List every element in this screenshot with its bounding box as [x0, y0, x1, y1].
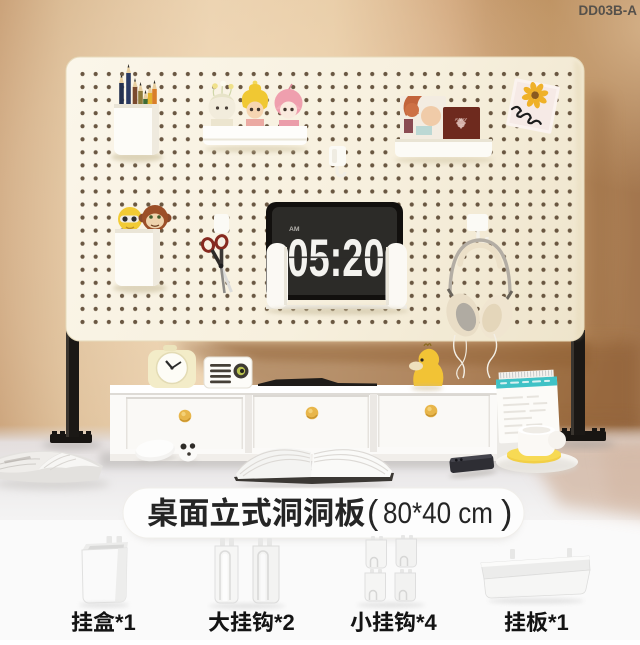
svg-text:*2: *2 [274, 610, 295, 635]
svg-text:): ) [501, 494, 512, 532]
svg-text:(: ( [367, 494, 379, 532]
svg-text:*4: *4 [416, 610, 438, 635]
svg-text:*1: *1 [548, 610, 569, 635]
svg-text:05:20: 05:20 [288, 229, 385, 288]
svg-text:AWAY: AWAY [455, 117, 468, 122]
svg-text:80*40 cm: 80*40 cm [383, 497, 493, 530]
svg-text:*1: *1 [115, 610, 136, 635]
svg-text:DD03B-A: DD03B-A [578, 3, 637, 18]
svg-text:GO: GO [457, 123, 465, 128]
